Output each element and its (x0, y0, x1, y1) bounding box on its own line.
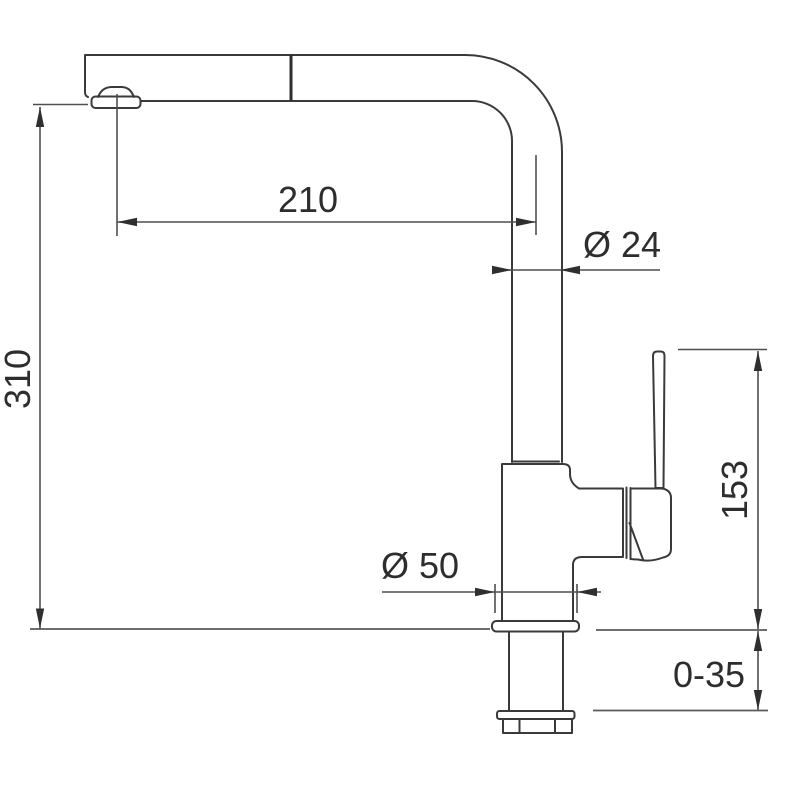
mounting-nut (503, 719, 572, 733)
spout-inner-contour (140, 101, 512, 462)
pipe-diameter-label: Ø 24 (583, 224, 661, 265)
handle-lever-rod (653, 352, 665, 489)
arrow-up-icon (754, 631, 762, 651)
dimension-spout-reach: 210 (117, 94, 536, 236)
base-diameter-label: Ø 50 (381, 545, 459, 586)
arrow-right-icon (475, 588, 495, 596)
dimension-base-diameter: Ø 50 (381, 545, 601, 613)
spout-height-label: 310 (0, 349, 38, 409)
arrow-down-icon (36, 609, 44, 629)
deck-thickness-label: 0-35 (673, 654, 745, 695)
technical-drawing-canvas: 310 210 Ø 24 Ø 50 (0, 0, 800, 800)
faucet-dimension-drawing: 310 210 Ø 24 Ø 50 (0, 0, 800, 800)
dimension-pipe-diameter: Ø 24 (492, 224, 661, 274)
handle-housing-seam (630, 523, 644, 560)
arrow-down-icon (754, 609, 762, 629)
arrow-up-icon (36, 107, 44, 127)
dimension-spout-height: 310 (0, 105, 88, 629)
dimension-deck-thickness: 0-35 (673, 631, 762, 710)
arrow-up-icon (754, 351, 762, 371)
dimension-handle-height: 153 (678, 350, 767, 630)
arrow-right-icon (516, 218, 536, 226)
handle-housing (631, 489, 672, 561)
arrow-down-icon (754, 690, 762, 710)
spout-reach-label: 210 (278, 179, 338, 220)
mounting-flange (492, 621, 579, 632)
arrow-right-icon (492, 266, 512, 274)
spout-outer-contour (85, 55, 562, 462)
spray-nozzle-base (92, 97, 141, 109)
arrow-left-icon (577, 588, 597, 596)
valve-body (502, 464, 623, 621)
arrow-left-icon (117, 218, 137, 226)
threaded-shank (509, 632, 563, 712)
mounting-washer (497, 711, 575, 719)
handle-height-label: 153 (714, 460, 755, 520)
reference-lines-group (30, 629, 768, 711)
faucet-outline-group (85, 55, 671, 733)
